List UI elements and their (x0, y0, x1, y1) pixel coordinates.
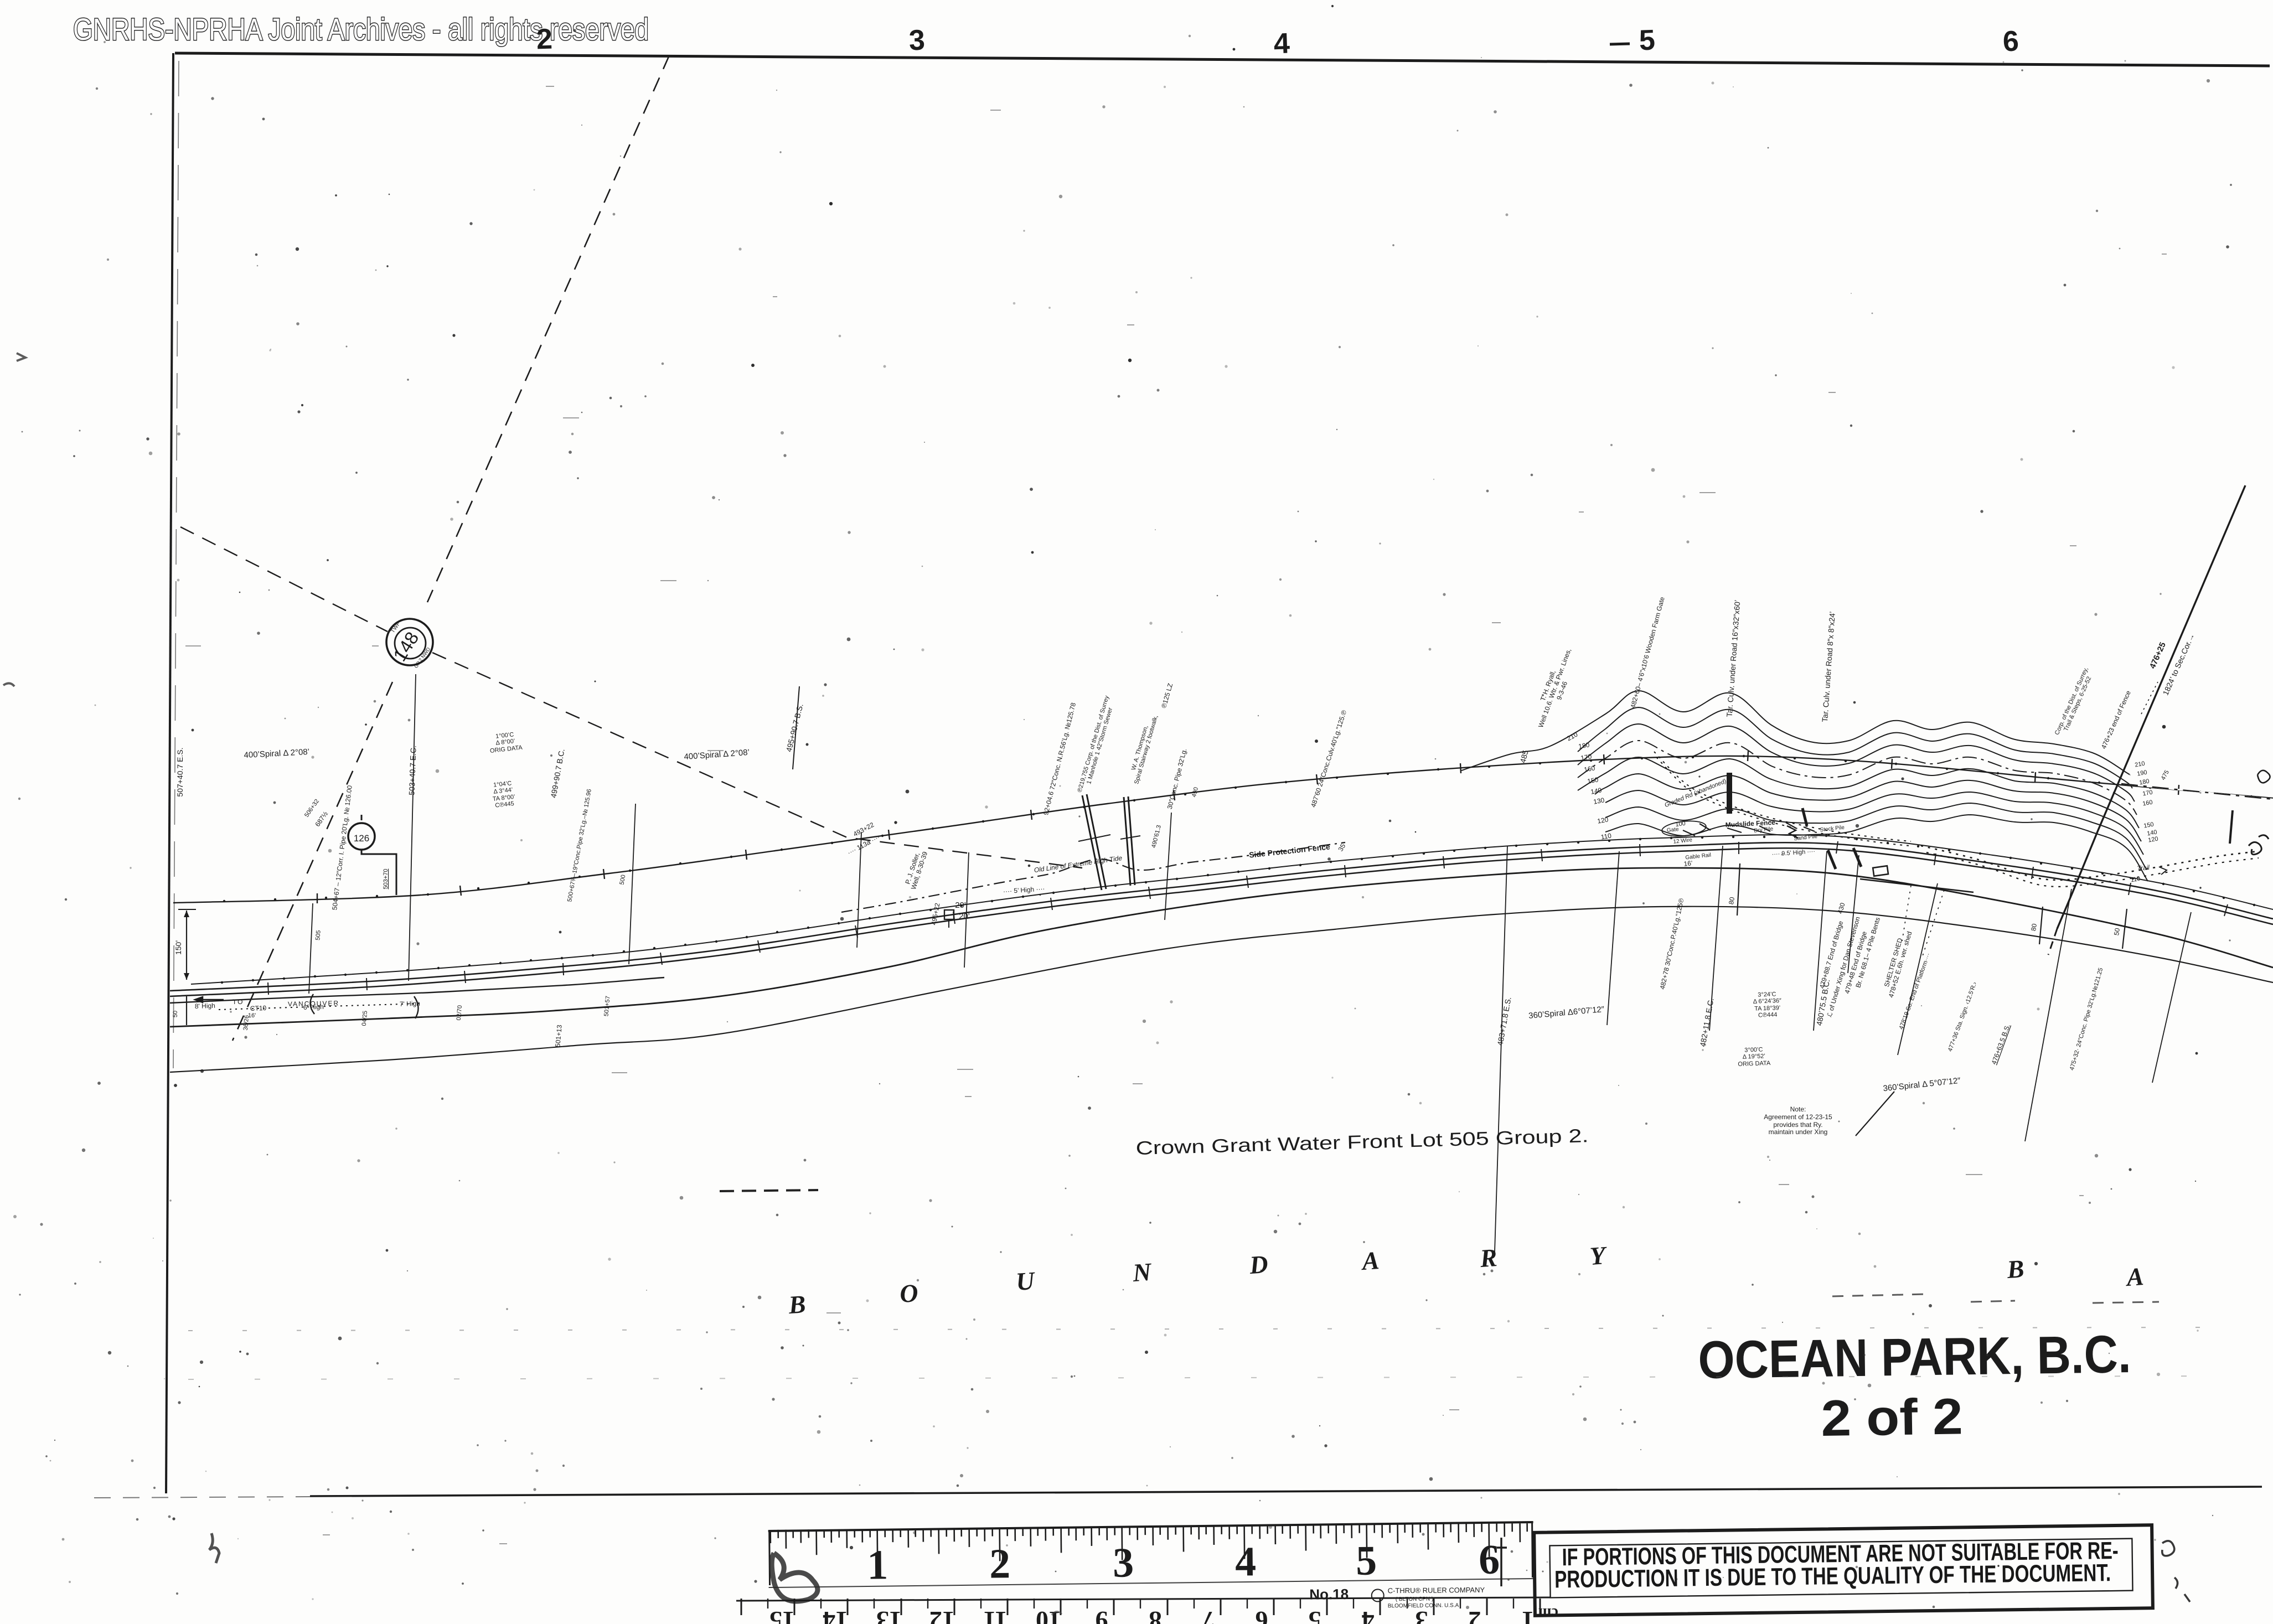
svg-text:Trail: Trail (2137, 863, 2150, 872)
svg-text:N: N (1132, 1258, 1153, 1287)
svg-text:O: O (899, 1279, 919, 1308)
svg-text:No.18: No.18 (1309, 1586, 1349, 1603)
svg-text:3: 3 (1416, 1606, 1428, 1624)
svg-text:10: 10 (1036, 1606, 1061, 1624)
svg-text:505: 505 (314, 930, 322, 940)
svg-text:( BLTON CPN ): ( BLTON CPN ) (1396, 1596, 1434, 1603)
svg-text:507+40.7 E.S.: 507+40.7 E.S. (175, 747, 184, 797)
svg-text:5: 5 (1309, 1606, 1321, 1624)
svg-text:04/25: 04/25 (361, 1011, 369, 1026)
svg-text:ORIG DATA: ORIG DATA (1738, 1060, 1771, 1068)
svg-text:4: 4 (1273, 28, 1290, 60)
svg-text:8' High: 8' High (195, 1002, 215, 1010)
svg-text:3: 3 (908, 24, 926, 57)
svg-text:4: 4 (1235, 1538, 1257, 1585)
svg-text:maintain under Xing: maintain under Xing (1769, 1128, 1828, 1136)
svg-text:2: 2 (536, 23, 553, 56)
svg-text:5: 5 (1356, 1537, 1377, 1584)
svg-text:126: 126 (354, 833, 369, 844)
svg-text:R: R (1479, 1243, 1498, 1273)
svg-text:Note:: Note: (1790, 1105, 1806, 1113)
svg-text:50: 50 (172, 1011, 179, 1017)
svg-text:OCEAN PARK, B.C.: OCEAN PARK, B.C. (1698, 1325, 2131, 1390)
svg-text:D: D (1248, 1250, 1269, 1279)
svg-text:6' High: 6' High (303, 1003, 324, 1011)
svg-text:150': 150' (174, 940, 183, 955)
svg-text:503+40.7 E.C.: 503+40.7 E.C. (407, 746, 417, 795)
svg-text:2 of 2: 2 of 2 (1821, 1388, 1963, 1447)
svg-text:4: 4 (1362, 1606, 1375, 1624)
svg-text:3°00’C: 3°00’C (1744, 1046, 1763, 1053)
svg-text:20': 20' (959, 912, 970, 921)
svg-text:5: 5 (1639, 24, 1656, 57)
svg-text:3: 3 (1113, 1539, 1134, 1586)
svg-text:cm: cm (1538, 1605, 1558, 1622)
svg-text:A: A (2124, 1262, 2145, 1291)
svg-text:C-THRU® RULER COMPANY: C-THRU® RULER COMPANY (1388, 1586, 1485, 1595)
svg-text:1: 1 (1522, 1606, 1535, 1624)
svg-text:provides that Ry.: provides that Ry. (1773, 1121, 1822, 1129)
svg-text:CT10: CT10 (250, 1004, 267, 1012)
svg-text:Δ 6°24’36″: Δ 6°24’36″ (1753, 997, 1782, 1005)
svg-text:A: A (1360, 1246, 1380, 1275)
svg-text:B: B (2006, 1254, 2025, 1284)
svg-text:U: U (1015, 1266, 1037, 1296)
svg-text:14: 14 (823, 1606, 848, 1624)
svg-text:7: 7 (1202, 1606, 1215, 1624)
svg-text:GNRHS-NPRHA Joint Archives - a: GNRHS-NPRHA Joint Archives - all rights … (73, 12, 649, 46)
svg-text:6: 6 (2002, 25, 2019, 58)
svg-text:80: 80 (1727, 896, 1736, 905)
svg-text:1: 1 (867, 1542, 888, 1588)
svg-text:100: 100 (1675, 820, 1686, 828)
svg-text:2: 2 (989, 1540, 1011, 1587)
svg-text:6: 6 (1479, 1537, 1500, 1583)
svg-text:50: 50 (2112, 927, 2121, 936)
svg-text:503+70: 503+70 (383, 868, 389, 889)
svg-text:Agreement of 12-23-15: Agreement of 12-23-15 (1764, 1113, 1832, 1121)
svg-text:Δ 19°52’: Δ 19°52’ (1743, 1053, 1766, 1060)
svg-text:7' High: 7' High (400, 1000, 420, 1008)
svg-text:8: 8 (1149, 1606, 1162, 1624)
svg-text:02/70: 02/70 (456, 1005, 463, 1021)
svg-text:20': 20' (955, 901, 966, 910)
svg-text:3°24’C: 3°24’C (1758, 991, 1776, 998)
svg-text:36/26: 36/26 (242, 1015, 250, 1031)
svg-text:TO: TO (233, 998, 244, 1006)
svg-text:B: B (787, 1290, 807, 1319)
svg-text:11: 11 (983, 1606, 1007, 1624)
svg-text:C℗444: C℗444 (1758, 1011, 1778, 1018)
svg-text:16’: 16’ (1683, 859, 1693, 868)
svg-text:6: 6 (1256, 1606, 1268, 1624)
svg-text:15: 15 (769, 1606, 795, 1624)
svg-text:80: 80 (2029, 923, 2038, 932)
svg-text:2: 2 (1469, 1606, 1481, 1624)
svg-text:13: 13 (876, 1606, 902, 1624)
svg-text:12: 12 (929, 1606, 955, 1624)
svg-text:9: 9 (1096, 1606, 1108, 1624)
